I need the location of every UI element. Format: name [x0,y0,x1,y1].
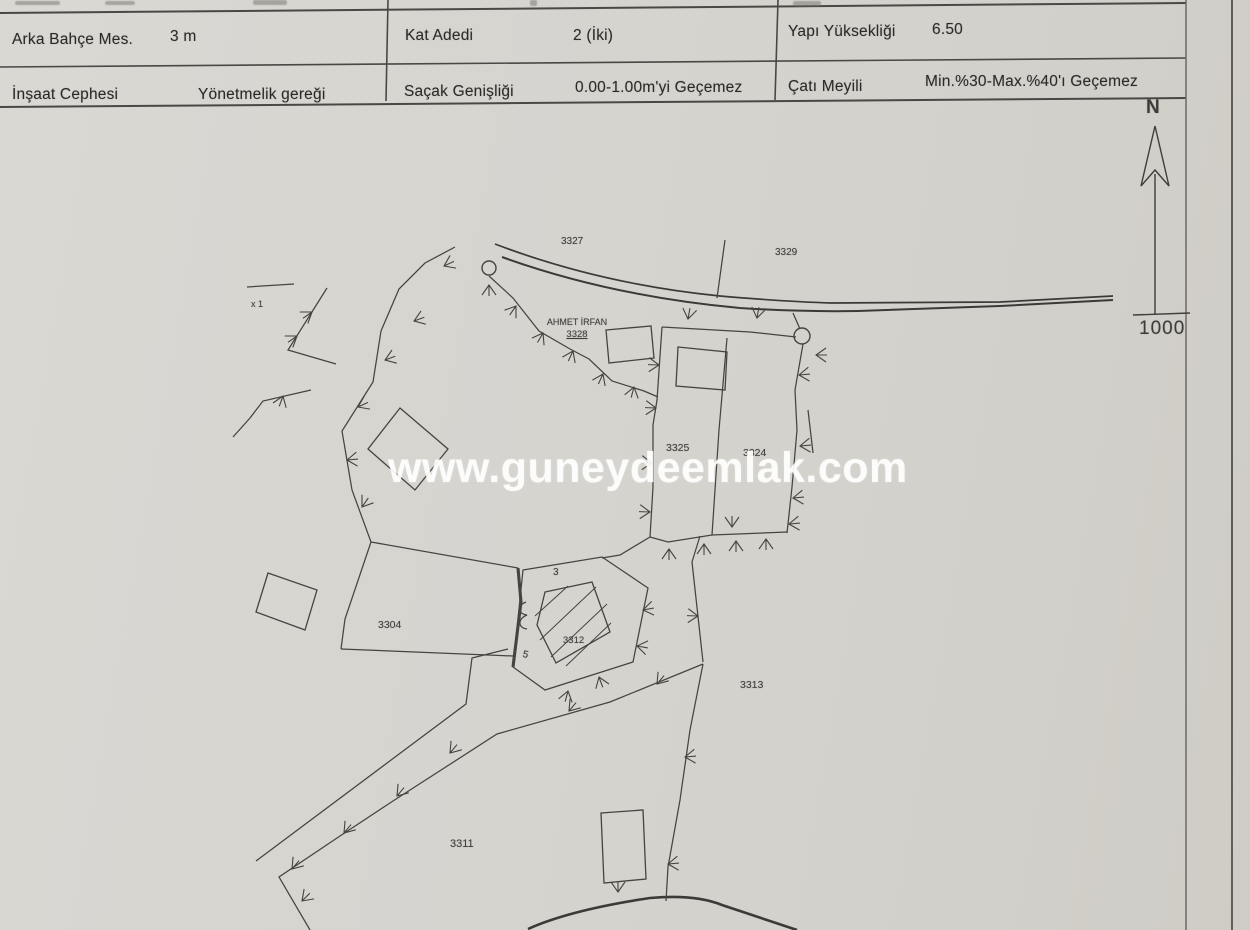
table-row2-label3: Çatı Meyili [788,78,863,96]
north-label: N [1146,97,1160,119]
parcel-label-3329: 3329 [775,247,797,258]
table-row2-label1: İnşaat Cephesi [12,86,118,104]
buildings [256,326,727,883]
parcel-label-3313: 3313 [740,679,763,691]
boundary-circle-markers [482,261,810,344]
parcel-boundaries [233,240,813,930]
page-border-lines [1186,0,1232,930]
note-x1-label: x 1 [251,299,263,309]
table-row2-label2: Saçak Genişliği [404,83,514,101]
cutoff-text-fragment [793,1,821,6]
boundary-tick-marks [273,255,827,906]
scale-label: 1000 [1139,318,1185,340]
road-bottom [528,897,797,930]
parcel-label-3304: 3304 [378,619,401,631]
table-row1-value2: 2 (İki) [573,27,613,45]
table-row1-label2: Kat Adedi [405,27,473,45]
north-arrow-icon [1133,126,1190,315]
owner-name-label: AHMET İRFAN [540,317,614,327]
hatched-building-3312 [535,582,611,666]
table-row1-label1: Arka Bahçe Mes. [12,31,133,49]
table-row2-value1: Yönetmelik gereği [198,86,325,104]
parcel-label-3328: 3328 [540,329,614,340]
table-row1-value3: 6.50 [932,21,963,39]
cutoff-text-fragment [15,1,60,5]
cutoff-text-fragment [105,1,135,5]
dimension-label-3: 3 [553,567,559,578]
road-top [495,244,1113,311]
table-row1-value1: 3 m [170,28,196,46]
cutoff-text-fragment [253,0,287,5]
scanned-zoning-plan-document: Arka Bahçe Mes. 3 m Kat Adedi 2 (İki) Ya… [0,0,1250,930]
building-label-3312: 3312 [563,635,584,646]
table-row1-label3: Yapı Yüksekliği [788,23,896,41]
parcel-label-3327: 3327 [561,236,583,247]
table-row2-value2: 0.00-1.00m'yi Geçemez [575,79,742,97]
table-row2-value3: Min.%30-Max.%40'ı Geçemez [925,73,1138,91]
parcel-label-3311: 3311 [450,838,474,850]
cutoff-text-fragment [530,0,537,6]
watermark-text: www.guneydeemlak.com [388,444,872,493]
